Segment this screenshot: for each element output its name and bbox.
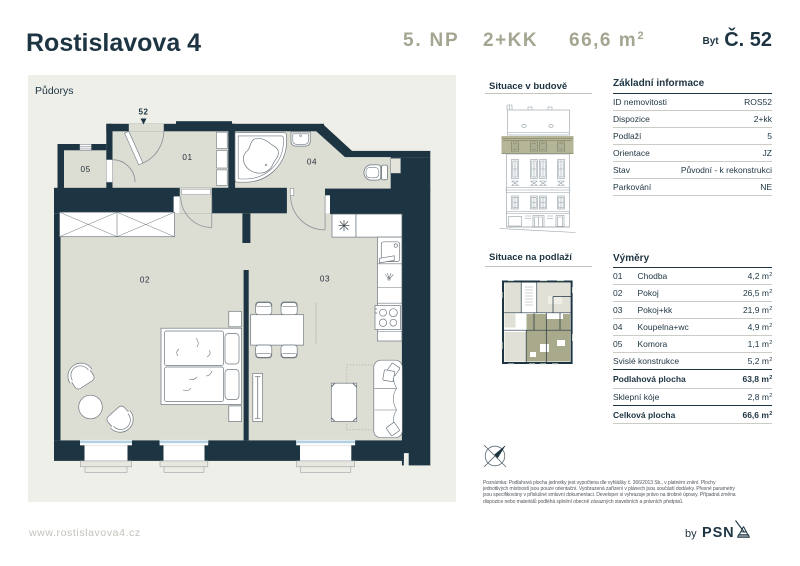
svg-text:01: 01 [182, 153, 192, 162]
svg-text:02: 02 [140, 276, 150, 285]
svg-text:04: 04 [307, 157, 317, 166]
svg-text:05: 05 [80, 165, 90, 174]
svg-text:52: 52 [139, 108, 149, 117]
svg-text:03: 03 [320, 275, 330, 284]
